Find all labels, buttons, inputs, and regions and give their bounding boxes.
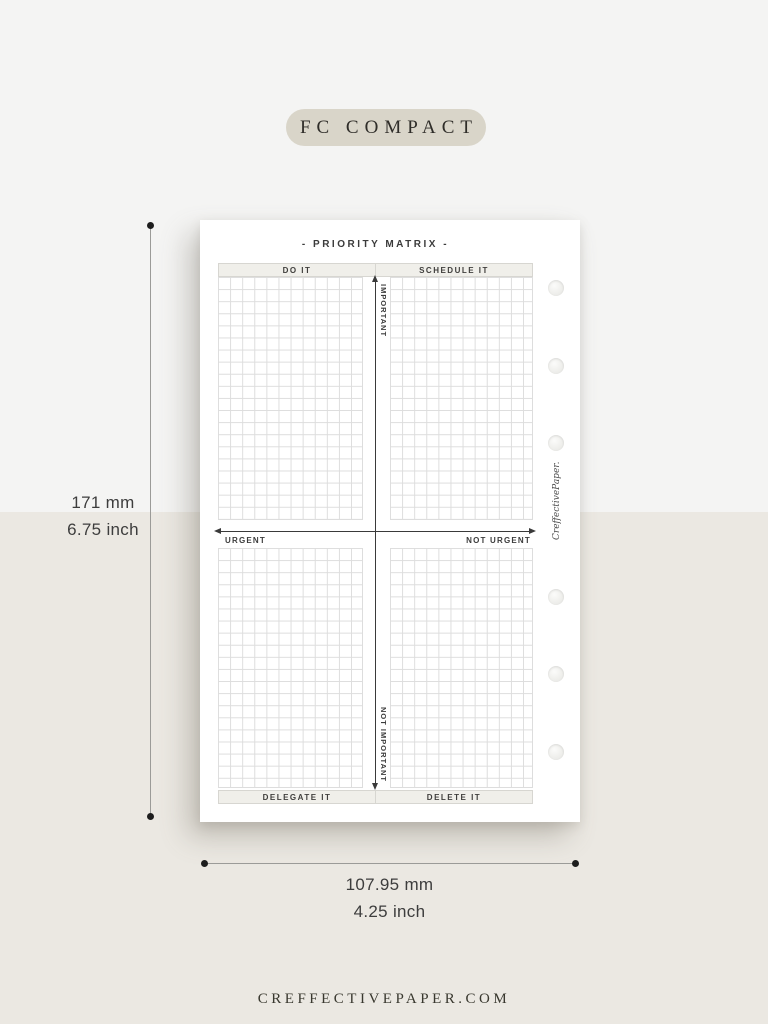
page-title: - PRIORITY MATRIX -: [218, 239, 533, 250]
punch-hole: [548, 435, 564, 451]
grid-quadrant-do-it: [218, 277, 363, 520]
width-mm: 107.95 mm: [204, 871, 575, 898]
axis-label-not-urgent: NOT URGENT: [466, 536, 531, 545]
dimension-endpoint-dot: [147, 813, 154, 820]
width-dimension-line: [204, 863, 575, 864]
quadrant-footer-row: DELEGATE IT DELETE IT: [218, 790, 533, 804]
quadrant-header-do-it: DO IT: [218, 263, 376, 277]
dimension-endpoint-dot: [147, 222, 154, 229]
height-mm: 171 mm: [38, 489, 168, 516]
quadrant-footer-delegate-it: DELEGATE IT: [218, 790, 376, 804]
punch-hole: [548, 358, 564, 374]
punch-hole: [548, 744, 564, 760]
product-size-badge: FC COMPACT: [286, 109, 486, 146]
punch-hole: [548, 666, 564, 682]
height-inch: 6.75 inch: [38, 516, 168, 543]
grid-quadrant-delete-it: [390, 548, 533, 788]
badge-label: FC COMPACT: [294, 117, 478, 139]
width-dimension-label: 107.95 mm 4.25 inch: [204, 871, 575, 925]
axis-label-urgent: URGENT: [225, 536, 266, 545]
quadrant-footer-delete-it: DELETE IT: [375, 790, 533, 804]
grid-quadrant-schedule-it: [390, 277, 533, 520]
grid-quadrant-delegate-it: [218, 548, 363, 788]
quadrant-header-schedule-it: SCHEDULE IT: [375, 263, 533, 277]
punch-hole: [548, 280, 564, 296]
brand-watermark: CreffectivePaper.: [549, 446, 565, 556]
axis-label-important: IMPORTANT: [379, 284, 388, 337]
dimension-endpoint-dot: [201, 860, 208, 867]
axis-label-not-important: NOT IMPORTANT: [379, 707, 388, 782]
vertical-axis-arrow: [375, 278, 376, 787]
height-dimension-label: 171 mm 6.75 inch: [38, 489, 168, 543]
width-inch: 4.25 inch: [204, 898, 575, 925]
planner-page-mockup: - PRIORITY MATRIX - DO IT SCHEDULE IT IM…: [200, 220, 580, 822]
website-footer: CREFFECTIVEPAPER.COM: [0, 991, 768, 1008]
dimension-endpoint-dot: [572, 860, 579, 867]
horizontal-axis-arrow: [217, 531, 533, 532]
punch-hole: [548, 589, 564, 605]
